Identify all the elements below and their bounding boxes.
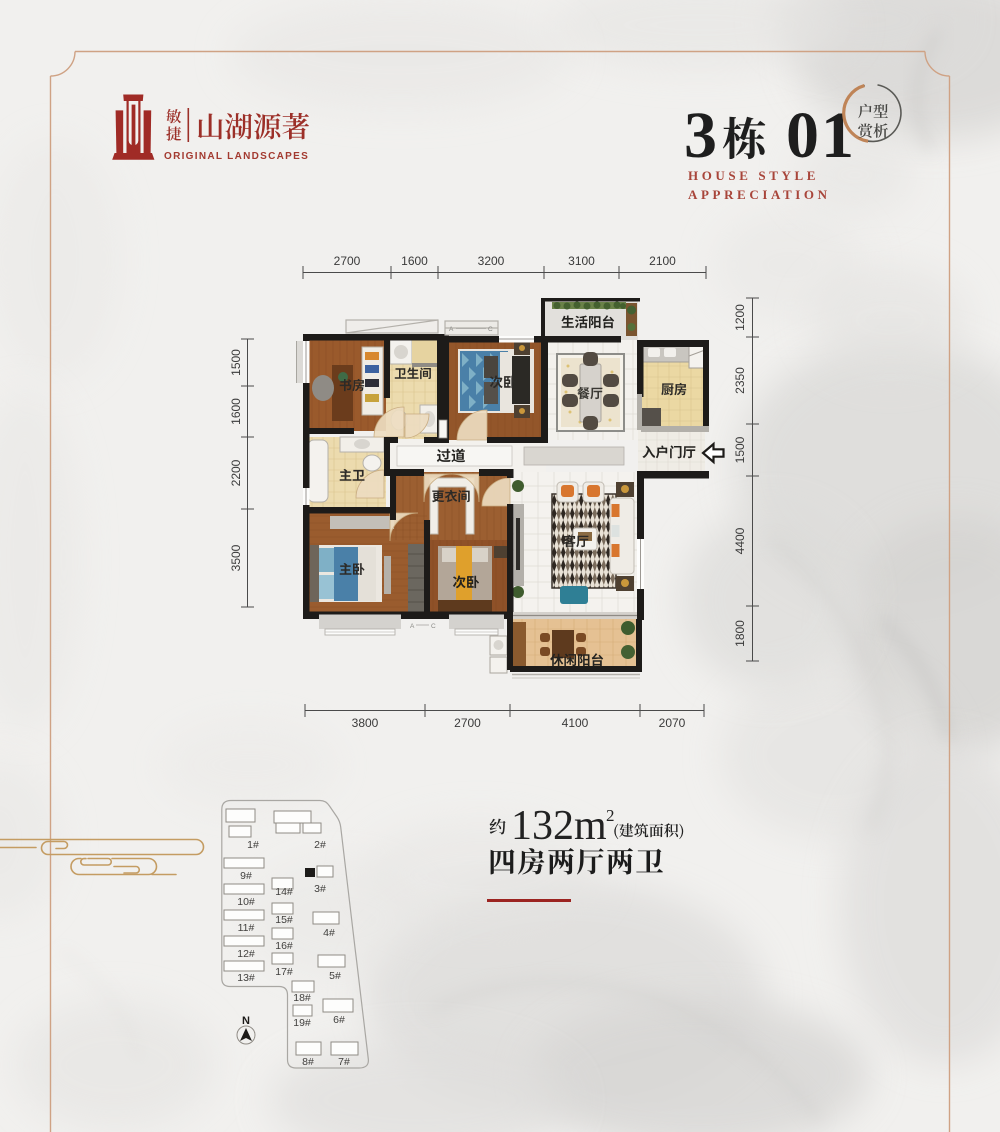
svg-text:A: A	[449, 326, 454, 333]
svg-text:ORIGINAL LANDSCAPES: ORIGINAL LANDSCAPES	[164, 151, 309, 162]
svg-text:11#: 11#	[238, 922, 255, 934]
svg-text:13#: 13#	[237, 972, 255, 984]
svg-text:4400: 4400	[733, 527, 747, 554]
svg-text:2700: 2700	[454, 716, 481, 730]
svg-text:6#: 6#	[333, 1014, 345, 1026]
svg-text:APPRECIATION: APPRECIATION	[688, 187, 831, 202]
svg-text:4100: 4100	[562, 716, 589, 730]
svg-text:18#: 18#	[293, 992, 311, 1004]
svg-text:2070: 2070	[659, 716, 686, 730]
svg-text:3800: 3800	[352, 716, 379, 730]
svg-text:5#: 5#	[329, 970, 341, 982]
svg-text:A: A	[410, 623, 415, 630]
svg-text:19#: 19#	[293, 1017, 311, 1029]
svg-text:1500: 1500	[733, 436, 747, 463]
svg-text:2350: 2350	[733, 367, 747, 394]
svg-text:1600: 1600	[229, 398, 243, 425]
svg-text:2#: 2#	[314, 839, 326, 851]
svg-text:2700: 2700	[334, 254, 361, 268]
svg-text:1600: 1600	[401, 254, 428, 268]
svg-text:3: 3	[684, 99, 717, 172]
svg-text:17#: 17#	[275, 966, 293, 978]
svg-text:12#: 12#	[237, 948, 255, 960]
svg-text:2: 2	[606, 806, 615, 825]
svg-text:1200: 1200	[733, 304, 747, 331]
svg-text:C: C	[488, 326, 493, 333]
svg-text:9#: 9#	[240, 870, 252, 882]
svg-text:16#: 16#	[275, 940, 293, 952]
svg-text:14#: 14#	[275, 886, 293, 898]
svg-text:1500: 1500	[229, 349, 243, 376]
svg-text:7#: 7#	[338, 1056, 350, 1068]
svg-text:15#: 15#	[275, 914, 293, 926]
svg-text:3200: 3200	[478, 254, 505, 268]
svg-text:1#: 1#	[247, 839, 259, 851]
svg-text:2200: 2200	[229, 459, 243, 486]
svg-text:4#: 4#	[323, 927, 335, 939]
svg-text:HOUSE STYLE: HOUSE STYLE	[688, 168, 819, 183]
svg-text:01: 01	[786, 99, 856, 172]
svg-text:C: C	[431, 623, 436, 630]
svg-text:3#: 3#	[314, 883, 326, 895]
svg-text:3100: 3100	[568, 254, 595, 268]
svg-text:10#: 10#	[237, 896, 255, 908]
svg-text:2100: 2100	[649, 254, 676, 268]
svg-text:1800: 1800	[733, 620, 747, 647]
svg-text:N: N	[242, 1015, 250, 1027]
svg-text:8#: 8#	[302, 1056, 314, 1068]
svg-text:3500: 3500	[229, 544, 243, 571]
svg-text:132m: 132m	[511, 803, 607, 849]
